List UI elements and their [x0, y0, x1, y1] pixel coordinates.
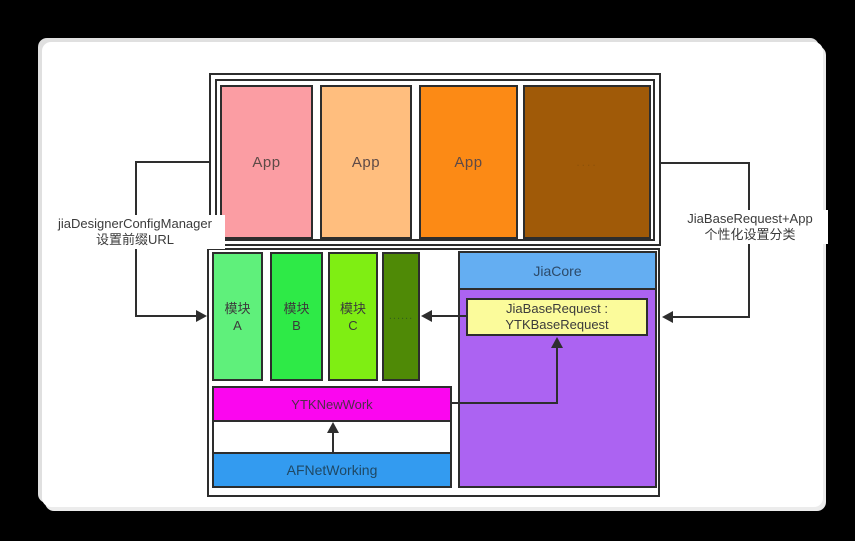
afnetworking-box: AFNetWorking: [212, 452, 452, 488]
jiabaserequest-line1: JiaBaseRequest :: [506, 301, 608, 317]
module-a-line1: 模块: [224, 300, 250, 317]
module-b-line2: B: [292, 317, 301, 334]
left-annotation-line2: 设置前缀URL: [45, 232, 225, 248]
module-a-line2: A: [233, 317, 242, 334]
module-c-line1: 模块: [340, 300, 366, 317]
module-box-a: 模块 A: [212, 252, 263, 381]
request-arrow-up-icon: [551, 337, 563, 348]
modules-arrow-left-icon: [421, 310, 432, 322]
jiabaserequest-box: JiaBaseRequest : YTKBaseRequest: [466, 298, 648, 336]
app-box-3-label: App: [454, 154, 482, 171]
config-arrow-right-icon: [196, 310, 207, 322]
ytk-to-request-vertical-line: [556, 345, 558, 404]
jiacore-header: JiaCore: [458, 251, 657, 290]
app-box-more: ....: [523, 85, 651, 239]
right-annotation: JiaBaseRequest+App 个性化设置分类: [672, 210, 828, 244]
module-b-line1: 模块: [283, 300, 309, 317]
app-box-3: App: [419, 85, 518, 239]
ytknewwork-box: YTKNewWork: [212, 386, 452, 422]
module-box-c: 模块 C: [328, 252, 378, 381]
afnetworking-label: AFNetWorking: [287, 462, 378, 478]
config-connector-bottom-line: [135, 315, 198, 317]
ytk-arrow-up-icon: [327, 422, 339, 433]
request-connector-top-line: [661, 162, 750, 164]
request-arrow-left-icon: [662, 311, 673, 323]
app-box-more-label: ....: [576, 155, 597, 169]
jiabaserequest-line2: YTKBaseRequest: [505, 317, 608, 333]
module-more-label: ......: [389, 308, 413, 325]
right-annotation-line1: JiaBaseRequest+App: [672, 211, 828, 227]
diagram-stage: App App App .... 模块 A 模块 B 模块 C ...... Y…: [0, 0, 855, 541]
request-connector-bottom-line: [672, 316, 750, 318]
left-annotation-line1: jiaDesignerConfigManager: [45, 216, 225, 232]
module-c-line2: C: [348, 317, 357, 334]
app-box-1: App: [220, 85, 313, 239]
app-box-1-label: App: [252, 154, 280, 171]
app-box-2-label: App: [352, 154, 380, 171]
module-box-b: 模块 B: [270, 252, 323, 381]
app-box-2: App: [320, 85, 412, 239]
config-connector-top-line: [135, 161, 209, 163]
right-annotation-line2: 个性化设置分类: [672, 227, 828, 243]
left-annotation: jiaDesignerConfigManager 设置前缀URL: [45, 215, 225, 249]
afn-to-ytk-line: [332, 430, 334, 452]
module-box-more: ......: [382, 252, 420, 381]
jiacore-label: JiaCore: [533, 263, 581, 279]
ytknewwork-label: YTKNewWork: [291, 397, 372, 412]
ytk-to-request-horizontal-line: [452, 402, 558, 404]
